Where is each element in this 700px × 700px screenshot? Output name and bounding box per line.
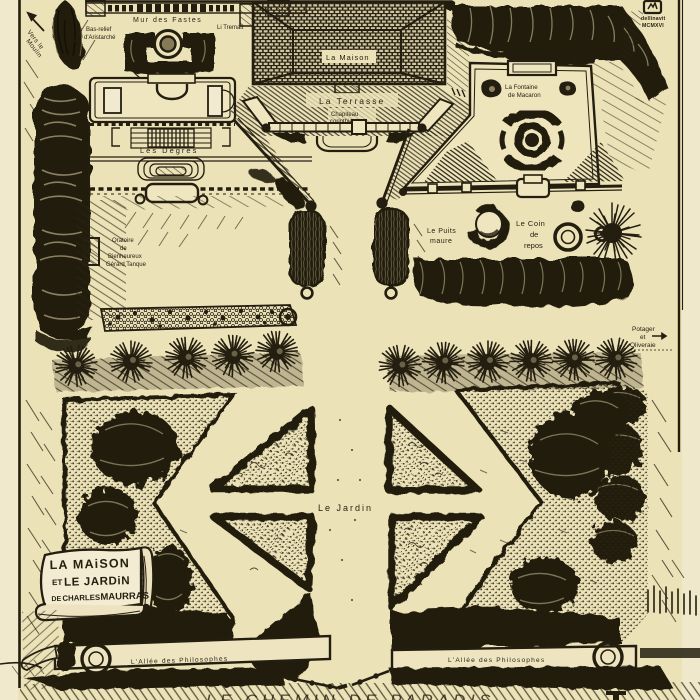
svg-text:Les Degrés: Les Degrés <box>140 146 198 155</box>
svg-text:Chapiteau: Chapiteau <box>331 112 358 118</box>
svg-text:de Macaron: de Macaron <box>508 92 541 99</box>
svg-text:L'Allée des Philosophes: L'Allée des Philosophes <box>448 657 545 664</box>
svg-text:Potager: Potager <box>632 326 656 333</box>
svg-text:CHARLES: CHARLES <box>62 593 100 603</box>
svg-text:Le Coin: Le Coin <box>516 219 545 228</box>
svg-text:MAURRAS: MAURRAS <box>100 591 149 603</box>
svg-text:de: de <box>530 230 538 239</box>
svg-text:LA MAiSON: LA MAiSON <box>49 556 130 572</box>
svg-text:Le Jardin: Le Jardin <box>318 503 373 513</box>
svg-text:La Fontaine: La Fontaine <box>505 84 538 91</box>
svg-text:MCMXVI: MCMXVI <box>642 23 664 29</box>
svg-text:dellinavit: dellinavit <box>641 16 666 22</box>
svg-text:Li Tremait: Li Tremait <box>217 25 244 31</box>
svg-text:ET: ET <box>52 578 63 587</box>
svg-text:Mur des Fastes: Mur des Fastes <box>133 17 202 24</box>
svg-text:DE: DE <box>51 596 61 603</box>
svg-text:Le Puits: Le Puits <box>427 228 456 235</box>
svg-text:et: et <box>640 334 646 341</box>
svg-text:La Terrasse: La Terrasse <box>319 96 385 106</box>
svg-text:d'Aristarché: d'Aristarché <box>84 35 116 41</box>
svg-text:La Maison: La Maison <box>326 53 370 62</box>
svg-text:LE CHEMIN DE PARADIS: LE CHEMIN DE PARADIS <box>206 691 495 700</box>
svg-text:LE JARDiN: LE JARDiN <box>64 575 130 589</box>
svg-text:maure: maure <box>430 238 452 245</box>
svg-text:Bas-relief: Bas-relief <box>86 27 112 33</box>
svg-text:repos: repos <box>524 241 543 250</box>
